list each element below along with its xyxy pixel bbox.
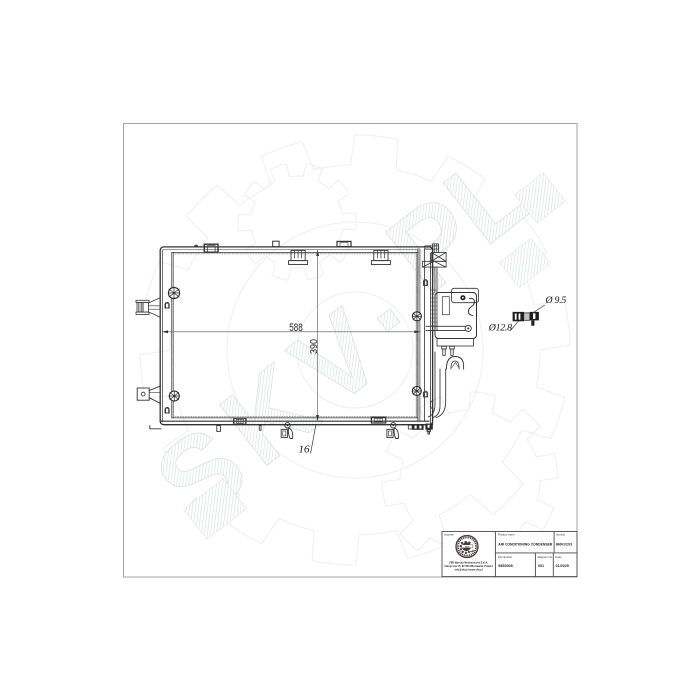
svg-text:01/2025: 01/2025 <box>556 564 569 568</box>
svg-text:Ø12.8: Ø12.8 <box>488 323 512 334</box>
svg-text:9850008: 9850008 <box>498 564 512 568</box>
svg-text:588: 588 <box>289 322 303 334</box>
svg-text:390: 390 <box>308 339 320 354</box>
svg-text:SKV: SKV <box>465 546 470 548</box>
svg-text:16: 16 <box>299 444 311 456</box>
svg-text:info@skv.pl www.skv.pl: info@skv.pl www.skv.pl <box>455 568 483 571</box>
svg-text:860KV2X3: 860KV2X3 <box>556 542 572 546</box>
svg-text:001: 001 <box>538 564 544 568</box>
svg-text:Fabryczna 15, 87-800 Wloclawek: Fabryczna 15, 87-800 Wloclawek, Poland <box>444 565 493 568</box>
svg-text:ZIBI Wyroby Mechaniczne S.K.A.: ZIBI Wyroby Mechaniczne S.K.A. <box>449 561 488 564</box>
svg-text:AIR CONDITIONING CONDENSER: AIR CONDITIONING CONDENSER <box>498 542 552 546</box>
svg-text:Ø 9.5: Ø 9.5 <box>545 295 567 306</box>
